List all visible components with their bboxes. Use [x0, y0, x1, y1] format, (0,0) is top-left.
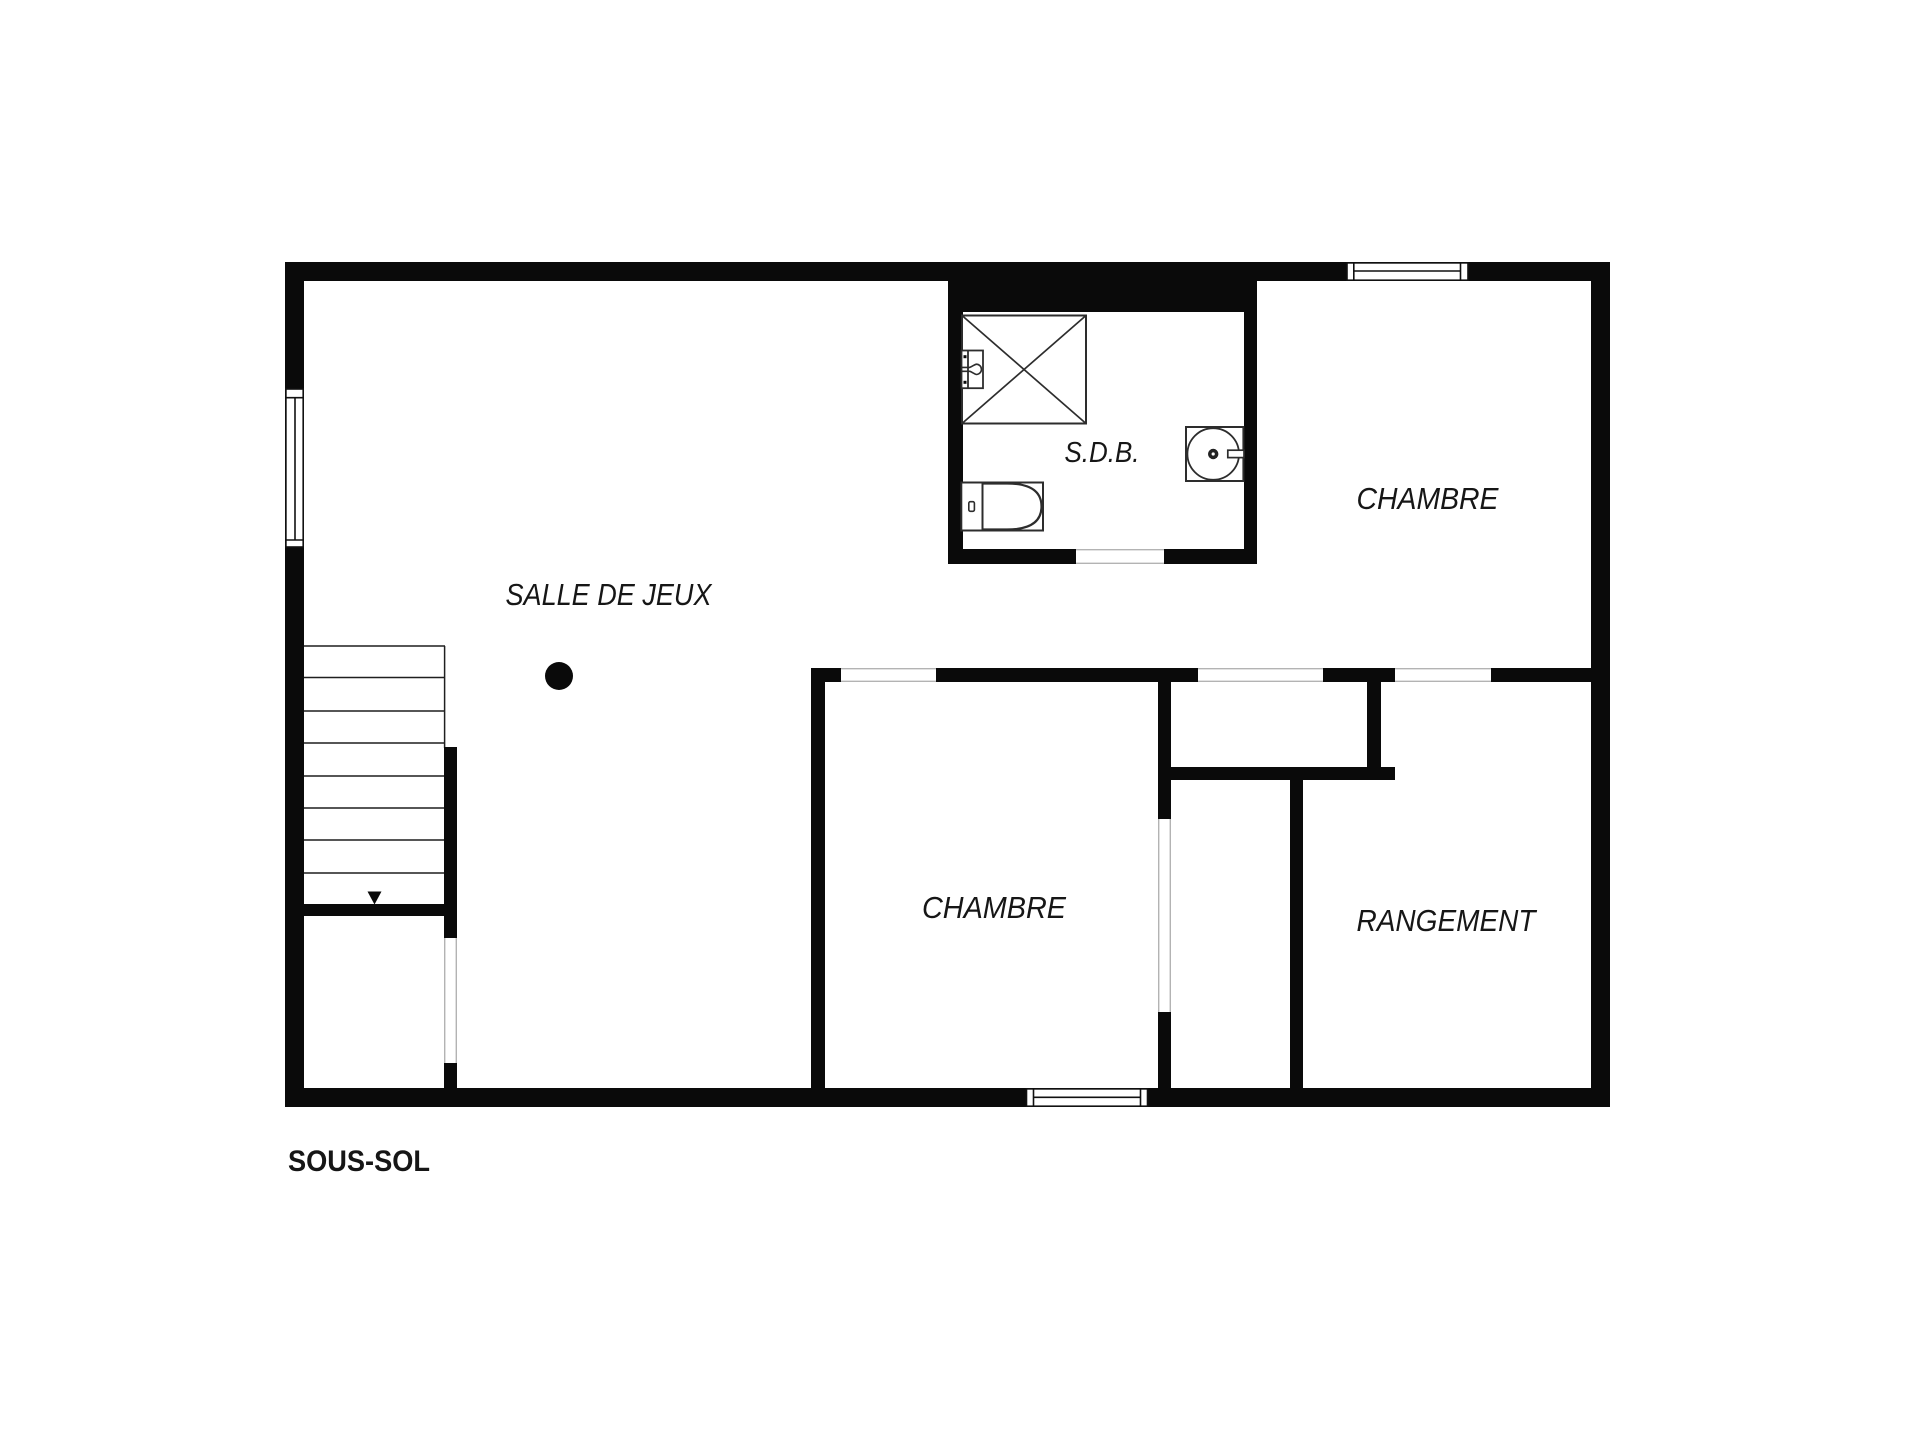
- svg-text:SOUS-SOL: SOUS-SOL: [288, 1145, 430, 1178]
- svg-text:CHAMBRE: CHAMBRE: [1357, 481, 1499, 516]
- svg-text:CHAMBRE: CHAMBRE: [922, 890, 1066, 925]
- svg-text:SALLE DE JEUX: SALLE DE JEUX: [506, 577, 713, 612]
- svg-text:S.D.B.: S.D.B.: [1065, 437, 1140, 469]
- svg-text:RANGEMENT: RANGEMENT: [1357, 903, 1538, 938]
